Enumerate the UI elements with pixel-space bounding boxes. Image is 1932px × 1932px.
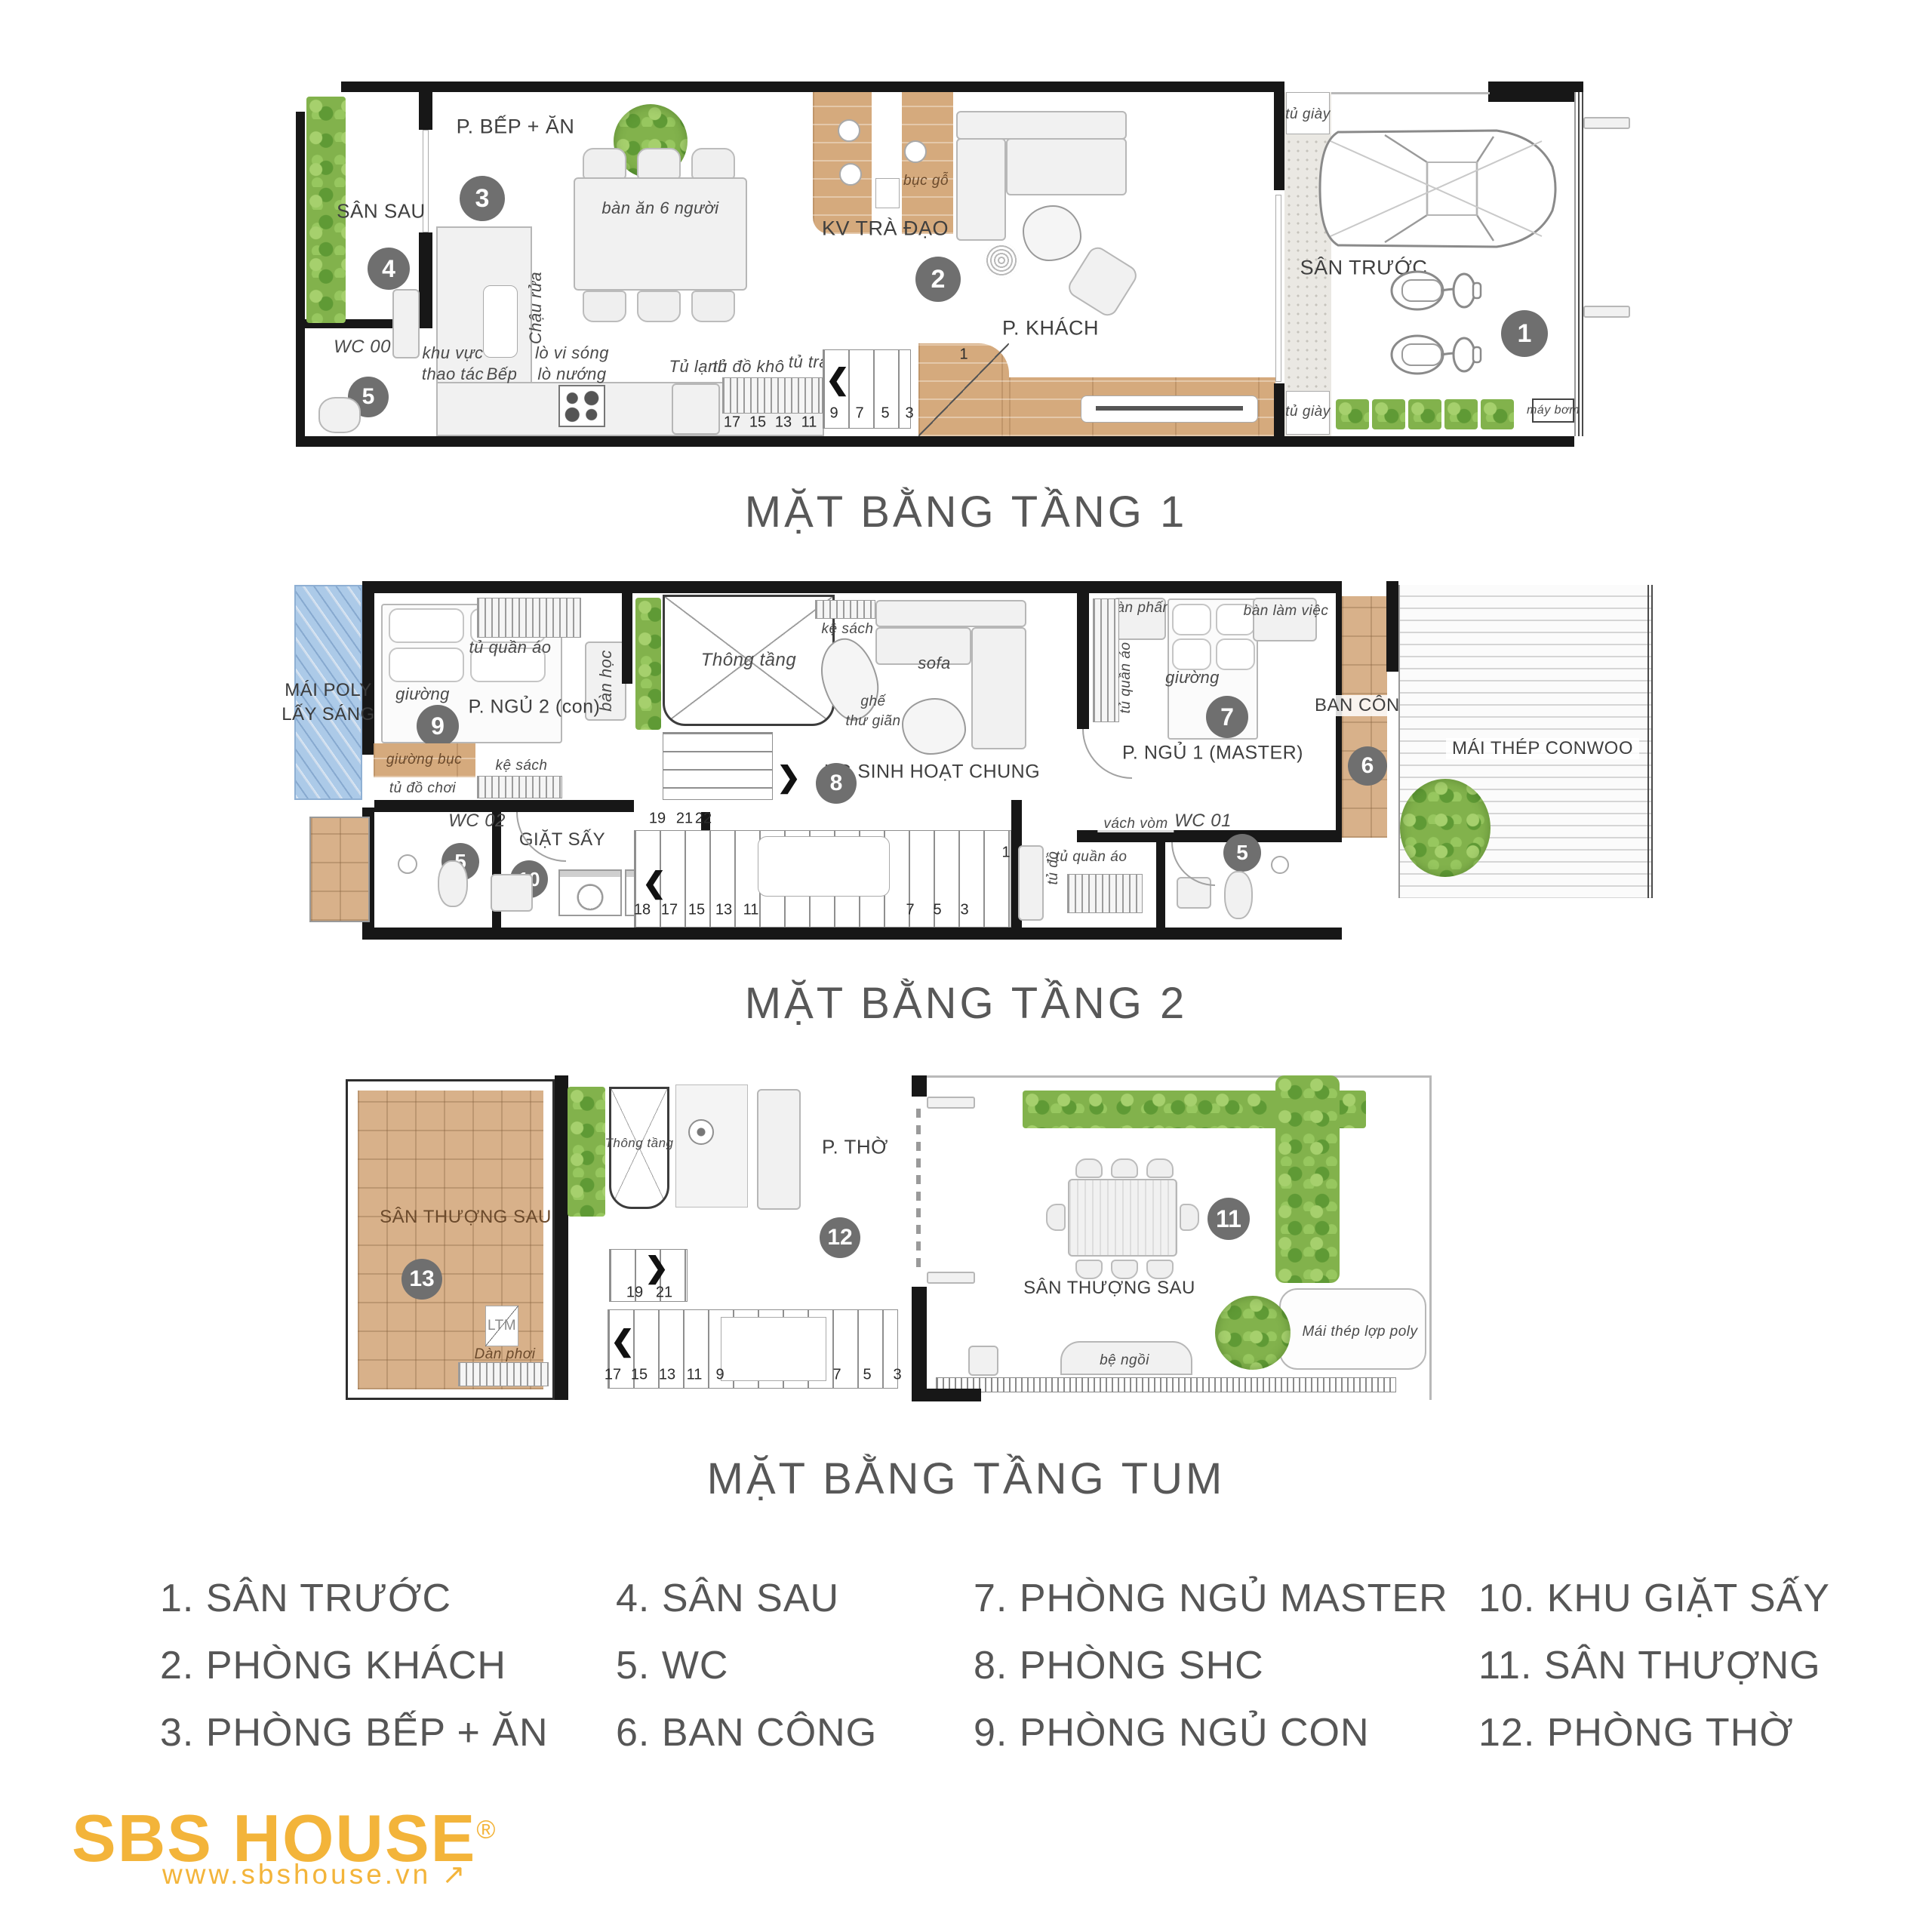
pillow	[1172, 604, 1211, 635]
wardrobe	[1067, 874, 1143, 913]
pillow	[389, 648, 464, 682]
dining-chair	[691, 148, 735, 180]
room-marker: 12	[820, 1217, 860, 1258]
wall	[555, 1075, 568, 1400]
stair-number: 13	[659, 1367, 675, 1384]
scooter-icon	[1389, 260, 1484, 321]
furniture-label: tủ giày	[1285, 106, 1330, 123]
bookshelf	[815, 600, 875, 619]
rear-balcony	[309, 817, 370, 922]
furniture-label: Bếp	[487, 365, 518, 384]
front-door	[1275, 195, 1281, 382]
brand-website: www.sbshouse.vn ↗	[162, 1858, 468, 1890]
room-label: WC 00	[334, 337, 391, 358]
planter-strip	[635, 598, 661, 730]
room-label: P. NGỦ 2 (con)	[469, 697, 601, 718]
roof-label: LẤY SÁNG	[281, 704, 375, 725]
area-label: thao tác	[422, 365, 484, 384]
room-label: WC 02	[448, 811, 506, 832]
tea-cushion	[904, 140, 927, 163]
floor1-plan: SÂN SAU 4 WC 00 5 P. BẾP + ĂN 3 bàn ăn 6…	[296, 82, 1638, 447]
wall	[419, 92, 432, 130]
gate-arm	[1583, 306, 1630, 318]
stair-landing	[721, 1317, 826, 1381]
room-label: SÂN THƯỢNG SAU	[380, 1207, 552, 1228]
legend-item: 2. PHÒNG KHÁCH	[160, 1643, 549, 1688]
partition-label: vách vòm	[1097, 816, 1174, 832]
wardrobe	[1093, 598, 1119, 722]
door-arc	[516, 812, 566, 862]
wall	[912, 1389, 981, 1401]
wall	[1077, 593, 1089, 729]
tree-icon	[1215, 1296, 1291, 1370]
furniture-label: tủ quần áo	[1118, 642, 1134, 714]
furniture-label: giường bục	[386, 752, 462, 768]
wall	[296, 436, 1284, 447]
floor-plan-sheet: SÂN SAU 4 WC 00 5 P. BẾP + ĂN 3 bàn ăn 6…	[0, 0, 1932, 1932]
gate-edge	[1574, 92, 1583, 436]
wall	[1274, 383, 1284, 436]
stair-direction-icon: ❮	[611, 1324, 635, 1358]
washing-machine	[558, 869, 622, 916]
gate-line	[1331, 92, 1490, 94]
room-marker: 3	[460, 176, 505, 221]
stair-number: 5	[881, 405, 889, 423]
pillow	[1172, 638, 1211, 670]
stair-number: 21	[676, 811, 693, 828]
planter-column	[1275, 1075, 1340, 1283]
balcony-floor	[1342, 596, 1387, 838]
sofa-back	[956, 111, 1127, 140]
outdoor-sink	[392, 289, 420, 358]
floor1-title: MẶT BẰNG TẦNG 1	[0, 487, 1932, 537]
stair-number: 19	[649, 811, 666, 828]
terrace-chair	[1146, 1158, 1174, 1178]
room-marker: 11	[1207, 1198, 1250, 1240]
terrace-chair	[1046, 1204, 1066, 1231]
equipment-label: Dàn phơi	[475, 1346, 536, 1363]
room-marker: 8	[816, 763, 857, 804]
planter-box	[1372, 399, 1405, 429]
bookshelf	[477, 776, 562, 798]
furniture-label: kệ sách	[496, 758, 548, 774]
dining-chair	[637, 291, 681, 322]
dining-chair	[583, 291, 626, 322]
dining-chair	[583, 148, 626, 180]
wall	[1284, 436, 1574, 447]
stair-number: 11	[687, 1367, 703, 1384]
room-marker: 6	[1348, 746, 1387, 786]
stair-number: 9	[715, 1367, 724, 1384]
tv-screen	[1096, 406, 1243, 411]
dining-table	[574, 177, 747, 291]
legend-item: 4. SÂN SAU	[616, 1576, 877, 1621]
legend-column-2: 4. SÂN SAU 5. WC 6. BAN CÔNG	[616, 1576, 877, 1777]
wall	[1488, 82, 1583, 102]
stair-number: 21	[656, 1284, 672, 1302]
stair-number: 13	[775, 414, 792, 432]
stair-direction-icon: ❯	[645, 1251, 669, 1285]
fan-icon	[688, 1119, 714, 1145]
terrace-chair	[1111, 1158, 1138, 1178]
room-label: SÂN SAU	[337, 200, 426, 223]
stair-number: 3	[905, 405, 913, 423]
void-label: Thông tầng	[701, 650, 796, 671]
dining-chair	[691, 291, 735, 322]
stair-number: 22	[695, 811, 712, 828]
stair-number: 5	[863, 1367, 871, 1384]
terrace-chair	[1111, 1260, 1138, 1279]
legend-item: 10. KHU GIẶT SẤY	[1478, 1576, 1830, 1621]
kitchen-sink	[483, 285, 518, 358]
laundry-sink	[491, 874, 533, 912]
registered-icon: ®	[476, 1816, 497, 1844]
deck-walkway	[872, 92, 902, 234]
armchair	[1065, 244, 1140, 320]
tea-stove	[875, 178, 900, 208]
furniture-label: ghế	[860, 694, 885, 710]
furniture-label: lò nướng	[537, 365, 606, 384]
sofa-seat	[1006, 138, 1127, 195]
furniture-label: thư giãn	[845, 713, 900, 730]
room-label: WC 01	[1174, 811, 1232, 832]
arrow-icon: ↗	[441, 1859, 468, 1890]
drying-rack	[458, 1362, 549, 1386]
furniture-label: bàn ăn 6 người	[601, 198, 718, 218]
outdoor-sink	[968, 1346, 998, 1376]
tum-plan: SÂN THƯỢNG SAU 13 LTM Dàn phơi Thông tần…	[340, 1075, 1438, 1404]
wall	[912, 1287, 927, 1400]
pillow	[1216, 638, 1255, 670]
legend-item: 7. PHÒNG NGỦ MASTER	[974, 1576, 1448, 1621]
altar-cabinet	[757, 1089, 801, 1210]
furniture-label: tủ giày	[1285, 404, 1330, 420]
wall	[341, 82, 1284, 92]
stair-number: 18	[634, 902, 651, 919]
legend-item: 6. BAN CÔNG	[616, 1710, 877, 1755]
wall	[1156, 842, 1165, 928]
furniture-label: bàn làm việc	[1244, 603, 1329, 620]
planter-box	[1481, 399, 1514, 429]
stair-direction-icon: ❮	[642, 866, 666, 900]
stair-number: 15	[749, 414, 766, 432]
stair-number: 17	[661, 902, 678, 919]
equipment-label: máy bơm	[1527, 404, 1580, 417]
sofa-back	[875, 600, 1026, 627]
legend-item: 8. PHÒNG SHC	[974, 1643, 1448, 1688]
legend-item: 11. SÂN THƯỢNG	[1478, 1643, 1830, 1688]
legend-column-3: 7. PHÒNG NGỦ MASTER 8. PHÒNG SHC 9. PHÒN…	[974, 1576, 1448, 1777]
gate-arm	[1583, 117, 1630, 129]
room-marker: 9	[417, 705, 459, 747]
stair-number: 17	[605, 1367, 621, 1384]
stair-number: 17	[724, 414, 740, 432]
room-marker: 7	[1206, 696, 1248, 738]
wall	[362, 581, 1342, 593]
door-hardware	[927, 1272, 975, 1284]
planter-box	[1444, 399, 1478, 429]
wall	[362, 928, 1342, 940]
floor2-plan: MÁI POLY LẤY SÁNG giường 9 tủ quần áo bà…	[290, 581, 1665, 940]
terrace-edge	[927, 1075, 1432, 1078]
legend-item: 9. PHÒNG NGỦ CON	[974, 1710, 1448, 1755]
wall	[296, 112, 305, 447]
furniture-label: bệ ngồi	[1100, 1352, 1149, 1369]
fridge	[672, 383, 720, 435]
furniture-label: tủ đồ khô	[712, 357, 784, 377]
closet	[1018, 845, 1044, 921]
wall	[419, 232, 432, 328]
room-label: P. NGỦ 1 (MASTER)	[1122, 743, 1303, 764]
stair-number: 3	[960, 902, 968, 919]
stair-number: 13	[715, 902, 732, 919]
stair-number: 11	[801, 414, 817, 432]
room-marker: 5	[1223, 834, 1261, 872]
furniture-label: bục gỗ	[903, 173, 949, 189]
stair-number: 19	[626, 1284, 643, 1302]
legend-item: 12. PHÒNG THỜ	[1478, 1710, 1830, 1755]
outdoor-table	[1068, 1179, 1177, 1257]
roof-label: MÁI POLY	[285, 680, 372, 701]
roof-label: Mái thép lợp poly	[1302, 1324, 1417, 1340]
furniture-label: giường	[395, 685, 450, 704]
roof-label: MÁI THÉP CONWOO	[1446, 738, 1639, 759]
furniture-label: Chậu rửa	[526, 272, 546, 344]
stair-direction-icon: ❯	[777, 761, 801, 795]
stair-number: 1	[959, 346, 968, 364]
stair-number: 5	[933, 902, 941, 919]
room-label: P. BẾP + ĂN	[457, 115, 575, 139]
furniture-label: tủ đồ chơi	[389, 780, 456, 797]
room-label: KG SINH HOẠT CHUNG	[824, 761, 1040, 783]
scooter-icon	[1389, 325, 1484, 385]
car-icon	[1315, 126, 1560, 251]
pillow	[389, 608, 464, 643]
staircase	[663, 732, 773, 800]
furniture-label: kệ sách	[822, 621, 874, 638]
terrace-chair	[1146, 1260, 1174, 1279]
stair-number: 7	[832, 1367, 841, 1384]
planter-strip	[568, 1087, 605, 1217]
stove-icon	[558, 385, 605, 427]
terrace-chair	[1075, 1158, 1103, 1178]
toilet	[318, 397, 361, 433]
shelf-area	[675, 1084, 748, 1207]
stair-number: 15	[631, 1367, 648, 1384]
terrace-chair	[1180, 1204, 1199, 1231]
stair-number: 9	[829, 405, 838, 423]
terrace-edge	[1429, 1075, 1432, 1400]
terrace-chair	[1075, 1260, 1103, 1279]
room-marker: 2	[915, 257, 961, 302]
toilet	[1224, 871, 1253, 919]
sofa-chaise	[956, 138, 1006, 241]
stair-number: 3	[893, 1367, 901, 1384]
planter-box	[1408, 399, 1441, 429]
dining-chair	[637, 148, 681, 180]
sofa-chaise	[971, 627, 1026, 749]
stair-number: 7	[855, 405, 863, 423]
furniture-label: sofa	[918, 654, 951, 673]
stair-direction-icon: ❮	[826, 363, 850, 397]
website-url: www.sbshouse.vn	[162, 1859, 431, 1890]
wall	[1386, 581, 1398, 672]
tea-cushion	[838, 119, 860, 142]
coffee-table	[1023, 205, 1081, 261]
room-marker: 1	[1501, 310, 1548, 357]
railing	[936, 1377, 1396, 1392]
wardrobe	[477, 598, 581, 638]
toilet	[438, 860, 468, 907]
stair-number: 11	[743, 902, 759, 919]
shower-head	[1271, 856, 1289, 874]
area-label: khu vực	[422, 343, 483, 363]
tea-cushion	[839, 163, 862, 186]
wall	[362, 581, 374, 755]
legend-item: 5. WC	[616, 1643, 877, 1688]
stair-number: 1	[1001, 844, 1010, 862]
room-label: P. KHÁCH	[1002, 317, 1099, 340]
tree-icon	[1400, 779, 1491, 877]
furniture-label: giường	[1165, 668, 1220, 688]
legend-column-4: 10. KHU GIẶT SẤY 11. SÂN THƯỢNG 12. PHÒN…	[1478, 1576, 1830, 1777]
stair-number: 7	[906, 902, 914, 919]
wall	[912, 1075, 927, 1097]
legend-item: 1. SÂN TRƯỚC	[160, 1576, 549, 1621]
sliding-door	[916, 1109, 921, 1272]
void-label: Thông tầng	[605, 1136, 673, 1151]
room-label: KV TRÀ ĐẠO	[822, 217, 949, 241]
room-label: SÂN THƯỢNG SAU	[1023, 1278, 1195, 1299]
furniture-label: tủ quần áo	[1056, 849, 1128, 866]
legend-column-1: 1. SÂN TRƯỚC 2. PHÒNG KHÁCH 3. PHÒNG BẾP…	[160, 1576, 549, 1777]
cabinet-over-stairs	[722, 377, 823, 414]
legend-item: 3. PHÒNG BẾP + ĂN	[160, 1710, 549, 1755]
stair-landing	[758, 836, 890, 897]
side-table	[902, 698, 966, 755]
stair-number: 15	[688, 902, 705, 919]
equipment-label: LTM	[488, 1318, 516, 1334]
shower-head	[398, 854, 417, 874]
room-label: P. THỜ	[822, 1136, 888, 1159]
planter-box	[1336, 399, 1369, 429]
furniture-label: tủ quần áo	[469, 638, 552, 657]
tum-title: MẶT BẰNG TẦNG TUM	[0, 1454, 1932, 1504]
room-marker: 13	[401, 1259, 442, 1300]
door-hardware	[927, 1097, 975, 1109]
room-marker: 4	[368, 248, 410, 290]
floor2-title: MẶT BẰNG TẦNG 2	[0, 978, 1932, 1029]
wall	[622, 593, 632, 684]
rug	[984, 243, 1019, 278]
wall	[1274, 92, 1284, 190]
furniture-label: lò vi sóng	[535, 343, 609, 363]
